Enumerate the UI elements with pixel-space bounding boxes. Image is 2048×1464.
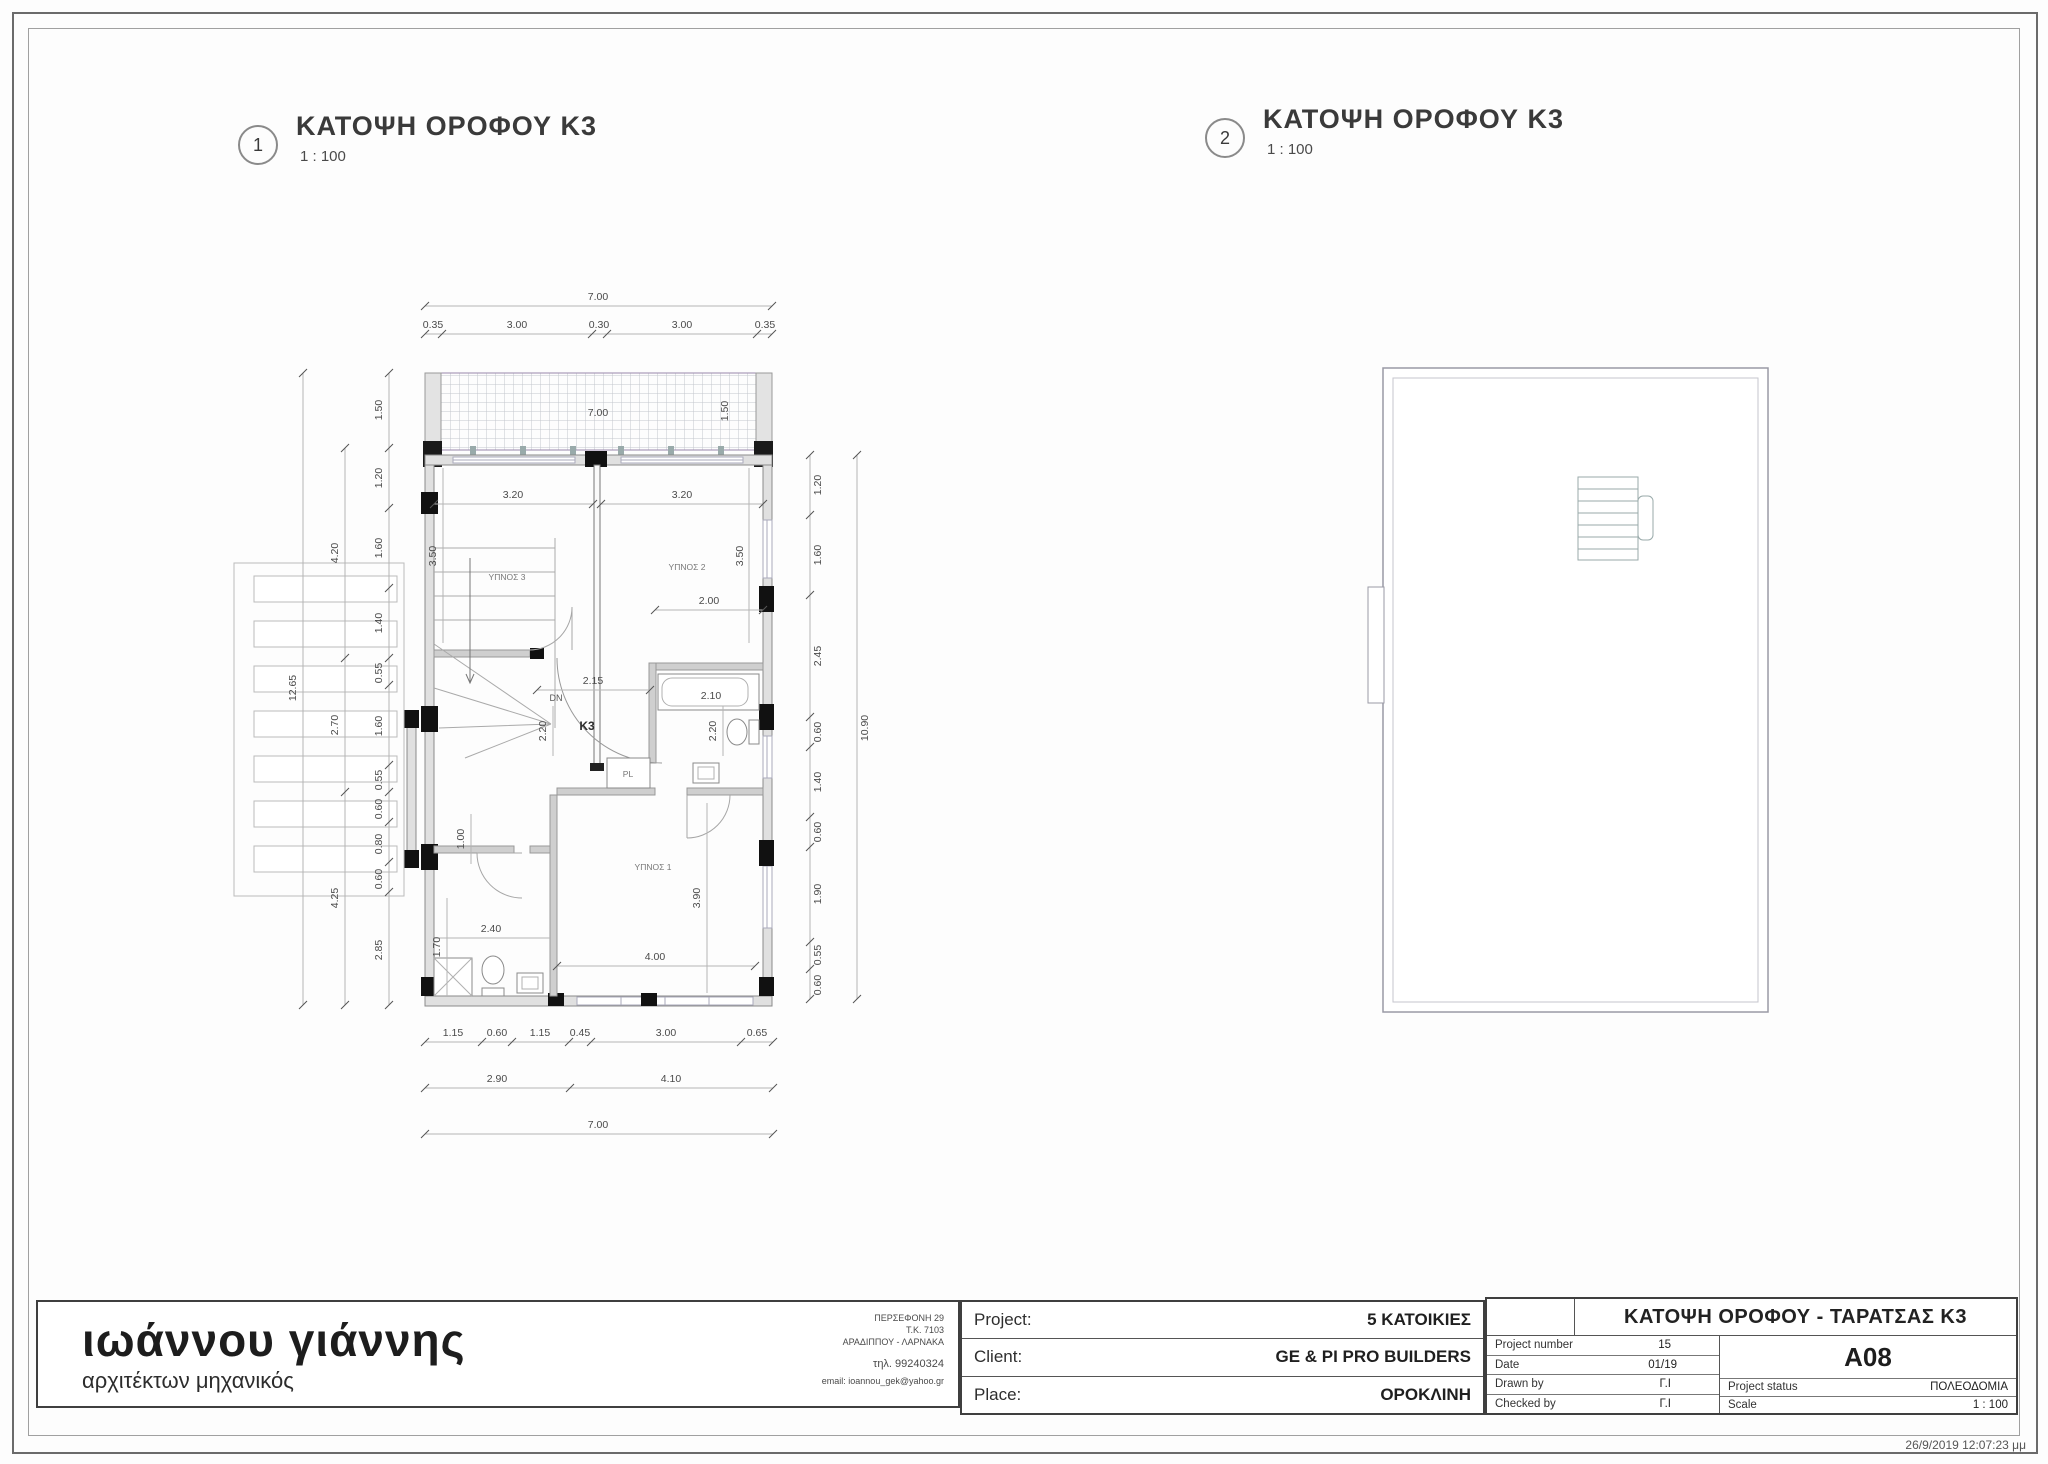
dim-label: 1.90 [812,884,824,905]
dim-label: 2.20 [537,721,549,742]
sheet-number-block: A08 Project status ΠΟΛΕΟΔΟΜΙΑ Scale 1 : … [1720,1336,2016,1413]
dim-label: 2.90 [487,1073,508,1085]
roof-plan-2 [1340,350,1800,1030]
status-value: ΠΟΛΕΟΔΟΜΙΑ [1930,1381,2008,1393]
dim-label: 3.00 [507,319,528,331]
dim-label: 1.00 [455,829,467,850]
client-label: Client: [974,1347,1022,1367]
dim-label: 3.00 [656,1027,677,1039]
view1-title-block: 1 ΚΑΤΟΨΗ ΟΡΟΦΟΥ Κ3 1 : 100 [238,125,597,165]
architect-email: email: ioannou_gek@yahoo.gr [822,1376,944,1386]
date-row: Date 01/19 [1487,1356,1719,1376]
dim-label: 2.40 [481,923,502,935]
project-number-value: 15 [1658,1339,1671,1351]
dim-label: 3.20 [672,489,693,501]
dim-label: 1.60 [373,716,385,737]
dim-label: 1.40 [812,772,824,793]
stair-down-label: DN [550,693,563,703]
dim-label: 2.70 [329,715,341,736]
checked-by-row: Checked by Γ.Ι [1487,1395,1719,1414]
date-value: 01/19 [1648,1359,1677,1371]
view1-number-bubble: 1 [238,125,278,165]
architect-box: ιωάννου γιάννης αρχιτέκτων μηχανικός ΠΕΡ… [36,1300,960,1408]
architect-address-line: ΠΕΡΣΕΦΟΝΗ 29 [822,1312,944,1324]
project-row: Project: 5 ΚΑΤΟΙΚΙΕΣ [962,1302,1483,1339]
dim-label: 2.00 [699,595,720,607]
dim-label: 2.15 [583,675,604,687]
toilet2-icon [482,956,504,984]
view2-title: ΚΑΤΟΨΗ ΟΡΟΦΟΥ Κ3 [1263,104,1564,135]
dim-label: 0.65 [747,1027,768,1039]
place-value: ΟΡΟΚΛΙΝΗ [1380,1385,1471,1405]
dim-label: 3.50 [734,546,746,567]
project-number-label: Project number [1495,1339,1573,1351]
dim-label: 2.20 [707,721,719,742]
client-row: Client: GE & PI PRO BUILDERS [962,1339,1483,1376]
dim-label: 1.70 [431,937,443,958]
view2-number-bubble: 2 [1205,118,1245,158]
dim-label: 3.90 [691,888,703,909]
toilet-icon [727,719,747,745]
room-label-bedroom3: ΥΠΝΟΣ 3 [489,572,526,582]
project-number-row: Project number 15 [1487,1336,1719,1356]
dim-label: 0.60 [373,869,385,890]
sheet-number: A08 [1720,1336,2016,1379]
dim-label: 7.00 [588,291,609,303]
dim-label: 0.80 [373,834,385,855]
architect-phone: τηλ. 99240324 [822,1358,944,1370]
sheet-title: ΚΑΤΟΨΗ ΟΡΟΦΟΥ - ΤΑΡΑΤΣΑΣ Κ3 [1575,1299,2016,1335]
client-value: GE & PI PRO BUILDERS [1275,1347,1471,1367]
sheet-meta-rows: Project number 15 Date 01/19 Drawn by Γ.… [1487,1336,1720,1413]
dim-label: 1.15 [443,1027,464,1039]
dim-label: 0.55 [373,663,385,684]
drawn-by-value: Γ.Ι [1660,1378,1671,1390]
place-label: Place: [974,1385,1021,1405]
dim-label: 1.20 [373,468,385,489]
status-label: Project status [1728,1381,1798,1393]
dim-label: 4.25 [329,888,341,909]
view1-title: ΚΑΤΟΨΗ ΟΡΟΦΟΥ Κ3 [296,111,597,142]
scale-value: 1 : 100 [1973,1399,2008,1411]
unit-label: Κ3 [579,719,595,733]
dim-label: 0.35 [423,319,444,331]
project-info-table: Project: 5 ΚΑΤΟΙΚΙΕΣ Client: GE & PI PRO… [960,1300,1485,1415]
dim-label: 3.00 [672,319,693,331]
drawing-sheet: 1 ΚΑΤΟΨΗ ΟΡΟΦΟΥ Κ3 1 : 100 2 ΚΑΤΟΨΗ ΟΡΟΦ… [0,0,2048,1464]
curved-wall [557,658,662,763]
sheet-title-spacer [1487,1299,1575,1335]
dim-label: 0.55 [373,770,385,791]
dim-label: 0.60 [487,1027,508,1039]
dim-label: 7.00 [588,407,609,419]
dim-label: 3.50 [427,546,439,567]
dim-label: 4.00 [645,951,666,963]
dim-label: 1.40 [373,613,385,634]
dim-label: 1.20 [812,475,824,496]
sheet-title-row: ΚΑΤΟΨΗ ΟΡΟΦΟΥ - ΤΑΡΑΤΣΑΣ Κ3 [1487,1299,2016,1336]
dim-label: 0.60 [812,822,824,843]
dim-label: 0.55 [812,945,824,966]
date-label: Date [1495,1359,1519,1371]
dim-label: 12.65 [287,675,299,701]
dim-label: 3.20 [503,489,524,501]
scale-label: Scale [1728,1399,1757,1411]
view2-number: 2 [1220,128,1230,149]
checked-by-label: Checked by [1495,1398,1556,1410]
dim-label: 0.60 [373,799,385,820]
dim-label: 0.60 [812,975,824,996]
dim-label: 0.60 [812,722,824,743]
dim-label: 4.20 [329,543,341,564]
view1-scale: 1 : 100 [300,148,597,165]
room-label-bedroom2: ΥΠΝΟΣ 2 [669,562,706,572]
room-label-bedroom1: ΥΠΝΟΣ 1 [635,862,672,872]
dim-label: 0.35 [755,319,776,331]
dim-label: 2.85 [373,940,385,961]
project-label: Project: [974,1310,1032,1330]
architect-contact: ΠΕΡΣΕΦΟΝΗ 29 Τ.Κ. 7103 ΑΡΑΔΙΠΠΟΥ - ΛΑΡΝΑ… [822,1312,944,1386]
view2-title-block: 2 ΚΑΤΟΨΗ ΟΡΟΦΟΥ Κ3 1 : 100 [1205,118,1564,158]
sheet-info-table: ΚΑΤΟΨΗ ΟΡΟΦΟΥ - ΤΑΡΑΤΣΑΣ Κ3 Project numb… [1485,1297,2018,1415]
dim-label: 1.50 [719,401,731,422]
architect-address-line: Τ.Κ. 7103 [822,1324,944,1336]
dim-label: 1.60 [373,538,385,559]
scale-row: Scale 1 : 100 [1720,1397,2016,1414]
dim-label: 1.15 [530,1027,551,1039]
status-row: Project status ΠΟΛΕΟΔΟΜΙΑ [1720,1379,2016,1397]
dim-label: 10.90 [859,715,871,741]
drawn-by-row: Drawn by Γ.Ι [1487,1375,1719,1395]
place-row: Place: ΟΡΟΚΛΙΝΗ [962,1377,1483,1413]
roof-left-notch [1368,587,1384,703]
floor-plan-1: 7.00 0.35 3.00 0.30 3.00 0.35 7.00 1.50 … [225,258,885,1178]
checked-by-value: Γ.Ι [1660,1398,1671,1410]
project-value: 5 ΚΑΤΟΙΚΙΕΣ [1367,1310,1471,1330]
dim-label: 0.45 [570,1027,591,1039]
view1-number: 1 [253,135,263,156]
dim-label: 2.45 [812,646,824,667]
dim-label: 7.00 [588,1119,609,1131]
closet-label: PL [623,769,634,779]
dim-label: 0.30 [589,319,610,331]
drawn-by-label: Drawn by [1495,1378,1544,1390]
dim-label: 4.10 [661,1073,682,1085]
dim-label: 1.50 [373,400,385,421]
dim-label: 1.60 [812,545,824,566]
dim-label: 2.10 [701,690,722,702]
print-timestamp: 26/9/2019 12:07:23 μμ [1905,1438,2026,1452]
architect-address-line: ΑΡΑΔΙΠΠΟΥ - ΛΑΡΝΑΚΑ [822,1336,944,1348]
view2-scale: 1 : 100 [1267,141,1564,158]
